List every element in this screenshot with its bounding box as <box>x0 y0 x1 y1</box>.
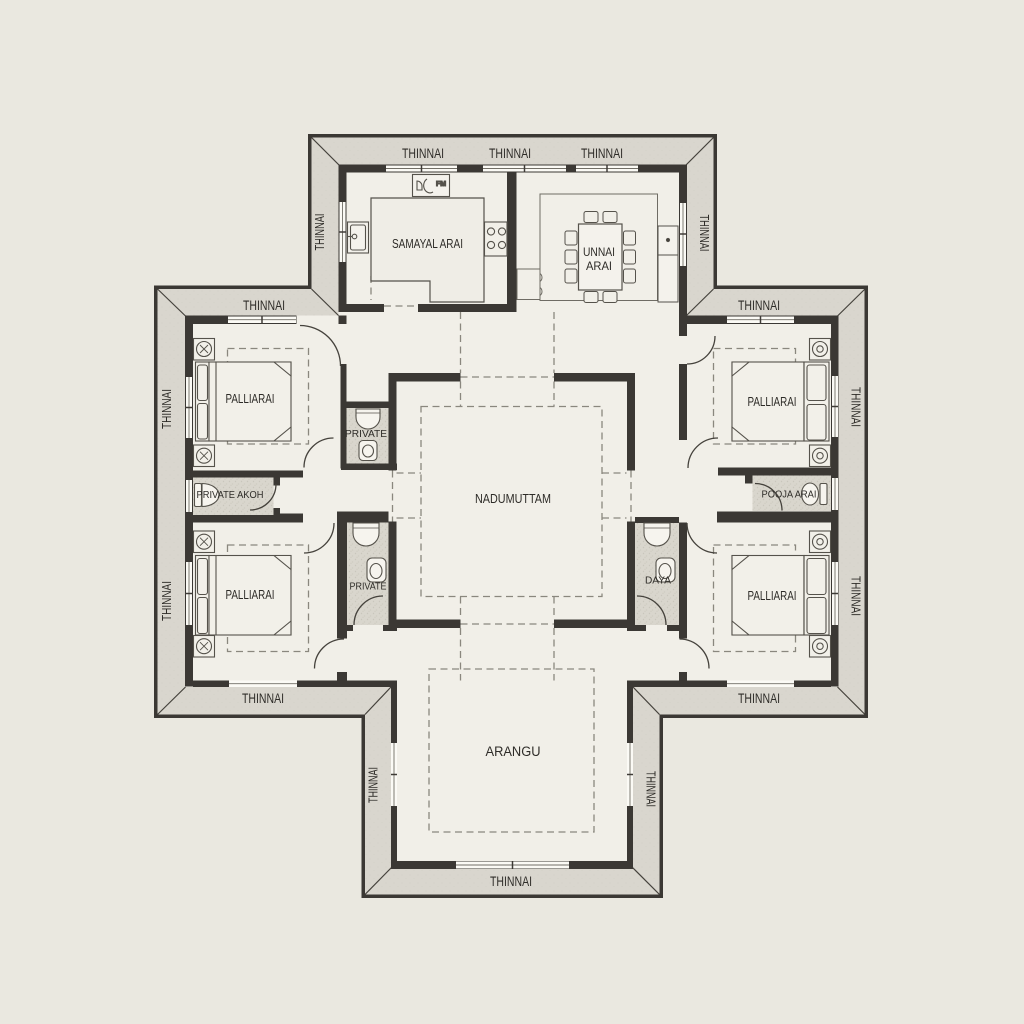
svg-text:THINNAI: THINNAI <box>313 214 327 251</box>
svg-text:SAMAYAL ARAI: SAMAYAL ARAI <box>392 237 463 251</box>
svg-text:THINNAI: THINNAI <box>849 576 863 616</box>
svg-text:PALLIARAI: PALLIARAI <box>226 588 275 602</box>
svg-text:PALLIARAI: PALLIARAI <box>226 392 275 406</box>
svg-text:THINNAI: THINNAI <box>738 298 780 313</box>
svg-text:THINNAI: THINNAI <box>242 691 284 706</box>
svg-text:PRIVATE: PRIVATE <box>345 428 387 440</box>
svg-text:PALLIARAI: PALLIARAI <box>748 589 797 603</box>
svg-text:THINNAI: THINNAI <box>490 874 532 889</box>
svg-text:POOJA ARAI: POOJA ARAI <box>762 489 817 501</box>
svg-text:THINNAI: THINNAI <box>243 298 285 313</box>
svg-text:PRIVATE: PRIVATE <box>350 581 387 593</box>
svg-text:PALLIARAI: PALLIARAI <box>748 395 797 409</box>
svg-text:PRIVATE AKOH: PRIVATE AKOH <box>197 490 264 501</box>
svg-text:NADUMUTTAM: NADUMUTTAM <box>475 491 551 506</box>
svg-text:THINNAI: THINNAI <box>697 215 711 252</box>
svg-text:FM: FM <box>436 181 446 188</box>
svg-text:THINNAI: THINNAI <box>160 581 174 621</box>
svg-text:THINNAI: THINNAI <box>738 691 780 706</box>
svg-text:ARANGU: ARANGU <box>486 744 541 759</box>
svg-text:THINNAI: THINNAI <box>644 771 658 807</box>
svg-text:THINNAI: THINNAI <box>402 146 444 161</box>
svg-text:UNNAI: UNNAI <box>583 247 615 259</box>
svg-text:THINNAI: THINNAI <box>489 146 531 161</box>
svg-text:ARAI: ARAI <box>586 261 612 273</box>
svg-text:DAYA: DAYA <box>645 575 671 587</box>
svg-text:THINNAI: THINNAI <box>367 767 381 803</box>
svg-text:THINNAI: THINNAI <box>581 146 623 161</box>
svg-text:THINNAI: THINNAI <box>849 387 863 427</box>
svg-text:THINNAI: THINNAI <box>160 389 174 429</box>
